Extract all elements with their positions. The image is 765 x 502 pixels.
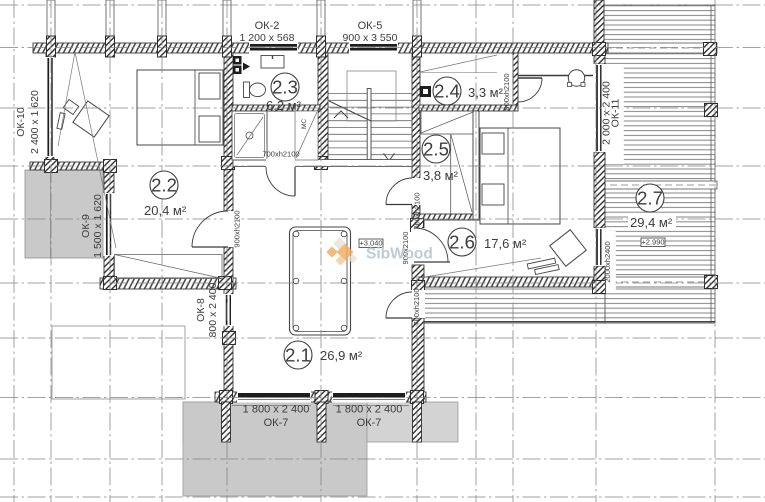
svg-text:17,6 м²: 17,6 м²	[484, 236, 527, 251]
svg-text:6,2 м²: 6,2 м²	[266, 98, 302, 113]
svg-text:ОК-5: ОК-5	[358, 20, 383, 32]
svg-text:20,4 м²: 20,4 м²	[144, 203, 187, 218]
svg-text:700хh2100: 700хh2100	[413, 192, 422, 229]
svg-text:ОК-9: ОК-9	[80, 214, 92, 238]
svg-text:3,3 м²: 3,3 м²	[468, 85, 504, 100]
svg-text:2.2: 2.2	[151, 175, 177, 196]
svg-text:700хh2100: 700хh2100	[262, 150, 299, 159]
svg-text:+2.990: +2.990	[641, 238, 664, 247]
svg-text:2.3: 2.3	[272, 77, 298, 98]
svg-text:2.1: 2.1	[285, 345, 311, 366]
svg-text:700хh2100: 700хh2100	[412, 288, 421, 325]
svg-text:SibWood: SibWood	[366, 246, 433, 263]
svg-text:900хh2100: 900хh2100	[233, 210, 242, 247]
svg-text:800 x 2 400: 800 x 2 400	[207, 282, 219, 337]
svg-text:29,4 м²: 29,4 м²	[630, 215, 673, 230]
svg-text:3,8 м²: 3,8 м²	[423, 168, 459, 183]
svg-text:900 x 3 550: 900 x 3 550	[343, 32, 398, 44]
svg-text:ОК-7: ОК-7	[357, 417, 382, 429]
svg-text:1 500 x 1 620: 1 500 x 1 620	[92, 194, 104, 258]
svg-text:2 400 x 1 620: 2 400 x 1 620	[29, 90, 41, 154]
svg-text:2.4: 2.4	[434, 81, 460, 102]
svg-text:2.5: 2.5	[423, 139, 449, 160]
svg-text:ОК-7: ОК-7	[264, 417, 289, 429]
svg-text:ОК-10: ОК-10	[15, 107, 27, 137]
svg-text:26,9 м²: 26,9 м²	[320, 348, 363, 363]
svg-text:2 000 x 2 400: 2 000 x 2 400	[601, 81, 613, 145]
svg-text:ОК-8: ОК-8	[195, 298, 207, 322]
svg-text:2.7: 2.7	[637, 188, 663, 209]
svg-text:1 200 x 568: 1 200 x 568	[240, 32, 295, 44]
svg-text:800хh2100: 800хh2100	[502, 73, 511, 110]
svg-text:1 800 x 2 400: 1 800 x 2 400	[336, 404, 403, 416]
svg-text:2000хh2400: 2000хh2400	[603, 241, 612, 282]
svg-text:1 800 x 2 400: 1 800 x 2 400	[243, 404, 310, 416]
svg-text:2.6: 2.6	[449, 232, 475, 253]
svg-text:МС: МС	[301, 119, 308, 129]
svg-text:ОК-2: ОК-2	[255, 20, 280, 32]
